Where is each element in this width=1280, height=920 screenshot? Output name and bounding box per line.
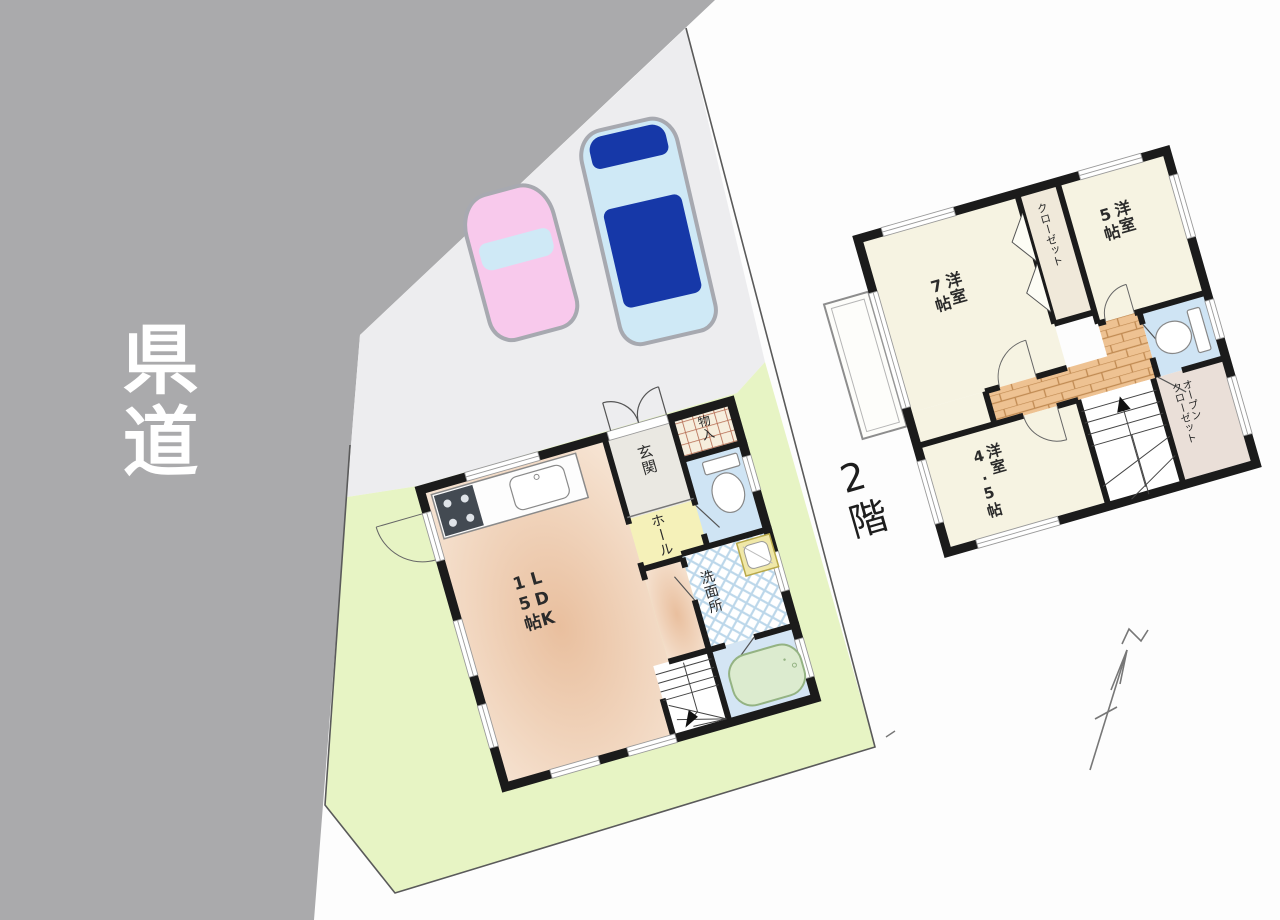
van-hood xyxy=(587,122,670,171)
floor2-plan: 洋室7帖 クローゼット 洋室5帖 洋室4.5帖 オープンクローゼット xyxy=(852,145,1262,558)
road-label: 県道 xyxy=(112,320,196,484)
van-roof xyxy=(602,193,703,309)
site-plan-image: 県道 xyxy=(0,0,1280,920)
car-windshield xyxy=(477,226,556,273)
floor1-plan: LDK15帖 玄関 物入 ホール 洗面所 xyxy=(415,395,822,792)
north-arrow xyxy=(1090,629,1148,770)
